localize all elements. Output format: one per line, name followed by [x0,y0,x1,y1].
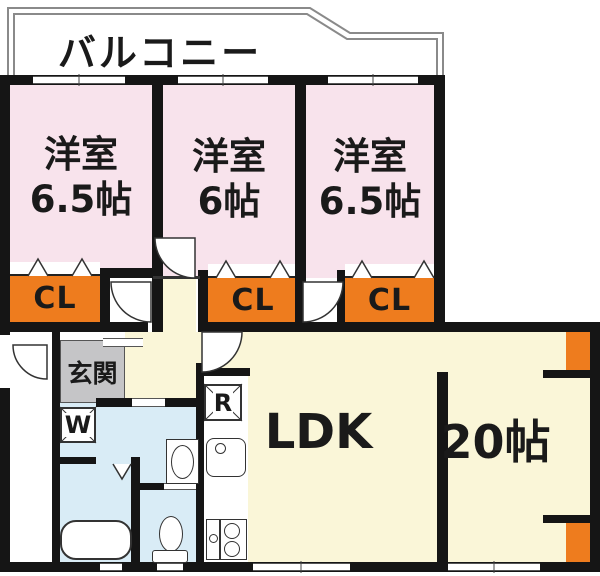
window-room3 [328,76,418,84]
sliding-door-toilet [164,483,196,490]
closet-2-door [208,264,298,278]
room-3-label: 洋室 6.5帖 [306,134,434,224]
kitchen-faucet [215,443,226,454]
window-room1 [33,76,125,84]
closet-1-label: CL [33,281,76,316]
balcony-label: バルコニー [40,22,280,77]
entrance-label: 玄関 [67,354,117,390]
closet-3-door [345,264,434,278]
room-3-name: 洋室 [333,135,407,178]
refrigerator-box: R [204,384,242,421]
washbasin-bowl [171,445,194,479]
wall-ldk-mainroom [437,372,448,572]
window-toilet [157,563,183,571]
wall-rooms-right [434,75,445,332]
stove-burner-1 [224,523,240,539]
stove-burner-2 [224,541,240,557]
sliding-door-entrance [103,338,143,347]
room-1-size: 6.5帖 [30,178,133,221]
entrance-area: 玄関 [60,340,125,403]
toilet-bowl [159,516,183,552]
ldk-doorway-floor [196,332,204,363]
room-1-door-arc [111,282,151,322]
wall-right-wing-top [200,322,600,332]
wall-closet2-left [198,270,208,332]
wall-room2-room3 [295,85,306,332]
entry-door-arc [13,345,47,379]
wall-hall-left [52,332,60,572]
wall-room1-room2 [152,85,163,332]
main-room-label: 20帖 [418,406,573,472]
wall-left-lower [0,388,10,572]
wall-bath-top [52,457,96,464]
wall-kitchen-cap [196,368,250,376]
window-main-room [448,563,540,571]
storage-niche-top [566,332,590,370]
wall-under-closet1 [0,322,148,332]
stove-knob [209,534,218,543]
bathtub [60,520,132,560]
wall-closet3-left [337,270,345,332]
window-bath [100,563,122,571]
washer-box: W [60,407,96,443]
room-2-size: 6帖 [198,180,261,223]
wall-closet1-right [100,270,110,332]
stove-divider [219,519,221,560]
room-2-label: 洋室 6帖 [163,134,295,224]
main-room-doorway-floor [437,332,448,372]
room-2-name: 洋室 [192,135,266,178]
room-1-label: 洋室 6.5帖 [10,132,152,222]
window-ldk [253,563,350,571]
floorplan: 玄関 CL CL CL W [0,0,600,576]
storage-niche-bottom [566,523,590,562]
wall-alcove1-top [100,268,152,278]
toilet-base [152,550,188,563]
wall-left-upper [0,75,10,335]
refrigerator-label: R [213,391,233,415]
closet-3: CL [345,278,434,322]
closet-1-door [10,262,100,276]
window-room2 [178,76,268,84]
room-3-size: 6.5帖 [319,180,422,223]
wall-right [590,322,600,572]
closet-2-label: CL [231,283,274,318]
sliding-door-washroom [132,398,165,407]
kitchen-sink [206,438,246,477]
closet-3-label: CL [368,283,411,318]
closet-2: CL [208,278,298,322]
room-1-name: 洋室 [44,133,118,176]
wall-stub-bottom-right [543,515,590,523]
wall-stub-top-right [543,370,590,378]
washer-label: W [64,413,92,437]
hallway-top-line [153,276,200,279]
wall-bath-toilet [131,457,140,572]
ldk-label: LDK [246,404,391,460]
closet-1: CL [10,275,100,322]
